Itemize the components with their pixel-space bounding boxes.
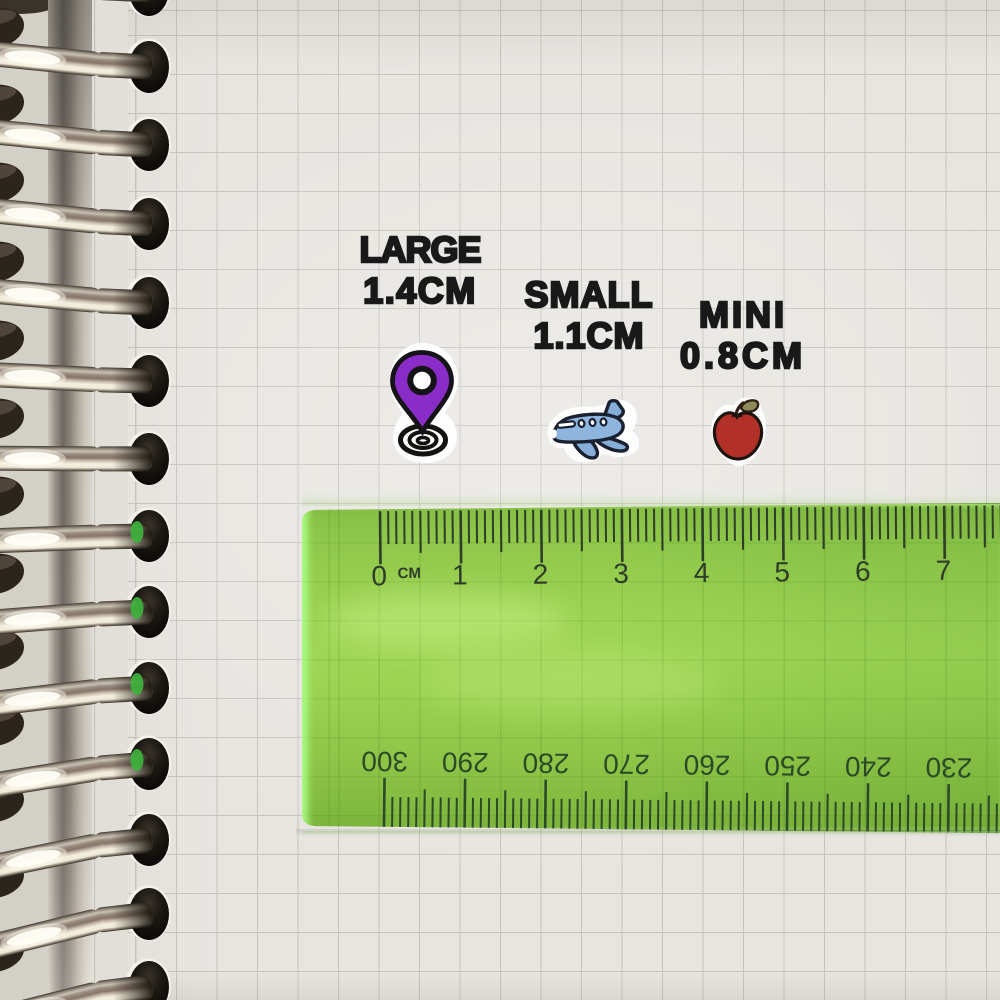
svg-text:280: 280 <box>522 747 569 779</box>
svg-text:1: 1 <box>452 559 468 590</box>
svg-text:0: 0 <box>371 560 387 591</box>
svg-text:4: 4 <box>694 557 710 588</box>
svg-text:7: 7 <box>935 555 951 586</box>
svg-text:CM: CM <box>398 565 421 582</box>
svg-text:290: 290 <box>442 747 489 779</box>
svg-text:230: 230 <box>925 752 972 784</box>
svg-text:2: 2 <box>532 559 548 590</box>
svg-text:260: 260 <box>684 749 731 781</box>
svg-text:6: 6 <box>855 556 871 587</box>
svg-text:270: 270 <box>603 748 650 780</box>
svg-text:5: 5 <box>774 556 790 587</box>
svg-text:3: 3 <box>613 558 629 589</box>
svg-text:240: 240 <box>845 751 892 783</box>
svg-text:250: 250 <box>764 750 811 782</box>
svg-text:300: 300 <box>361 746 408 778</box>
